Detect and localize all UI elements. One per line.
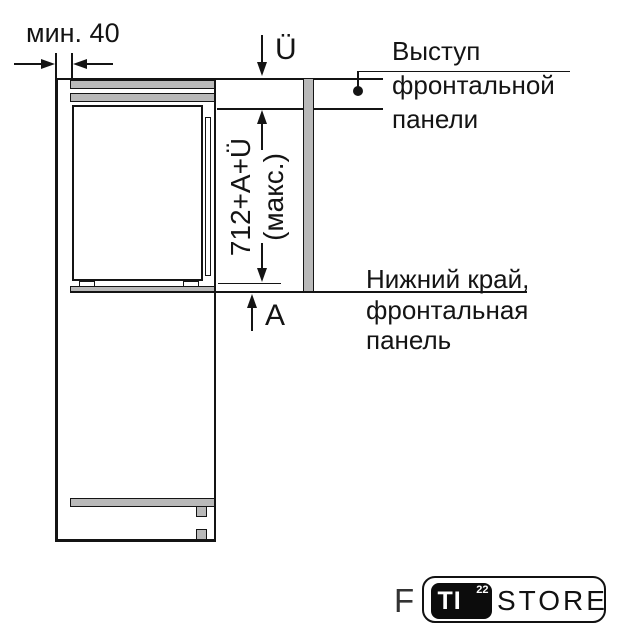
- front-panel-top-note: Выступ фронтальной панели: [392, 34, 555, 136]
- logo-badge: TI 22: [431, 583, 492, 619]
- cabinet-right-wall: [214, 78, 217, 543]
- front-panel-bottom-note-line2: фронтальная: [366, 295, 529, 326]
- leader-dot: [353, 86, 363, 96]
- logo-badge-superscript: 22: [476, 584, 488, 596]
- logo-letter-f: F: [394, 582, 414, 620]
- logo-badge-text: TI: [438, 587, 462, 616]
- cabinet-left-wall: [55, 78, 58, 543]
- cabinet-bottom-line: [55, 539, 216, 542]
- a-dim-line: [251, 306, 253, 331]
- plinth-bracket-upper: [196, 506, 207, 518]
- top-panel-strip-2: [70, 93, 215, 102]
- max-height-dim-label: 712+A+Ü (макс.): [224, 117, 290, 277]
- door-side-trim-strip: [205, 117, 211, 276]
- arrow-down-icon: [257, 268, 267, 282]
- store-logo: TI 22 STORE: [422, 576, 606, 623]
- front-panel-bottom-note-line3: панель: [366, 325, 529, 356]
- min-gap-dim-line-left: [14, 63, 42, 65]
- front-panel-top-note-line3: панели: [392, 102, 555, 136]
- installation-diagram: мин. 40 Ü 712+A+Ü (макс.) A Высту: [0, 0, 617, 640]
- appliance-door: [72, 105, 203, 281]
- a-dim-label: A: [265, 299, 285, 333]
- front-panel-bottom-note-line1: Нижний край,: [366, 264, 529, 295]
- min-gap-label: мин. 40: [26, 18, 120, 49]
- door-top-extension-line: [217, 108, 383, 110]
- u-dim-label: Ü: [275, 33, 297, 67]
- arrow-right-icon: [41, 59, 55, 69]
- u-dim-line: [261, 35, 263, 63]
- front-panel-bottom-note: Нижний край, фронтальная панель: [366, 264, 529, 356]
- front-panel-top-note-line2: фронтальной: [392, 68, 555, 102]
- door-bottom-extent-line: [218, 283, 281, 285]
- front-panel-side-view: [303, 78, 314, 292]
- top-panel-strip-1: [70, 80, 215, 89]
- plinth-bracket-lower: [196, 529, 207, 541]
- arrow-down-icon: [257, 62, 267, 76]
- arrow-left-icon: [73, 59, 87, 69]
- front-panel-top-note-line1: Выступ: [392, 34, 555, 68]
- logo-brand-text: STORE: [497, 585, 608, 617]
- max-height-dim-label-line1: 712+A+Ü: [224, 117, 257, 277]
- min-gap-dim-line-right: [87, 63, 113, 65]
- min-gap-extent-line-outer: [55, 53, 57, 78]
- bottom-shelf-panel: [70, 498, 215, 507]
- max-height-dim-line-bottom: [261, 243, 263, 269]
